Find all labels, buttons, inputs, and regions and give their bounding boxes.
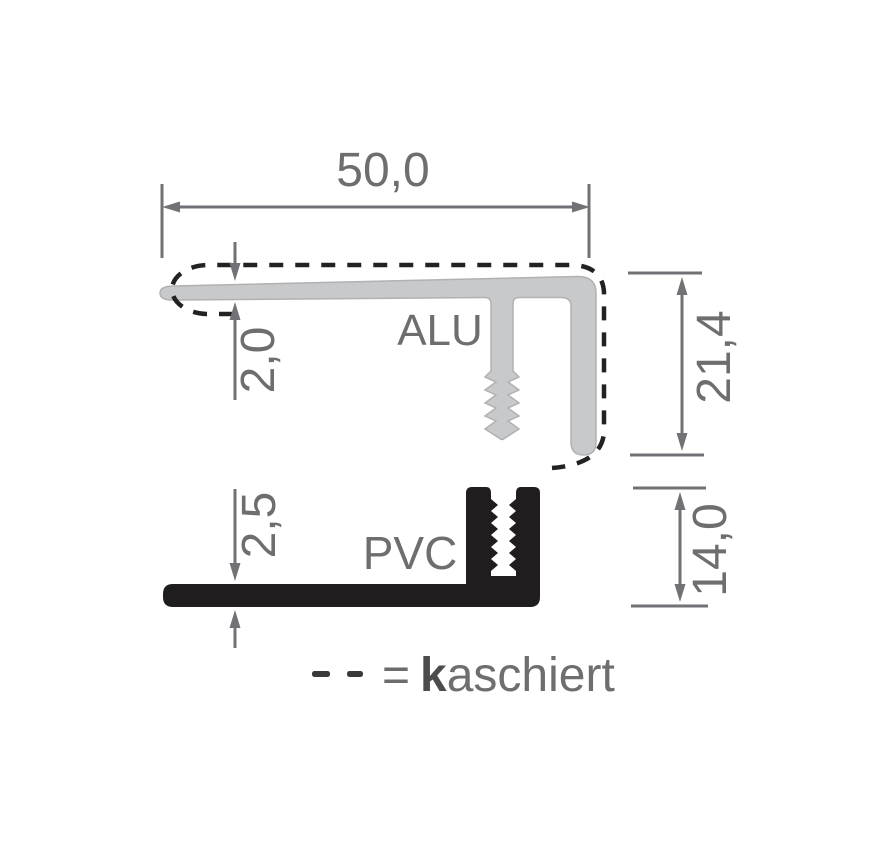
arrow-left-icon <box>162 202 180 213</box>
dim-total-width-label: 50,0 <box>336 147 429 195</box>
arrow-down-icon <box>230 563 241 581</box>
dim-pvc-height-label: 14,0 <box>687 503 735 596</box>
dim-alu-thickness-label: 2,0 <box>235 327 283 394</box>
alu-material-label: ALU <box>397 309 483 353</box>
arrow-down-icon <box>677 433 688 451</box>
arrow-up-icon <box>230 610 241 628</box>
dim-pvc-thickness-label: 2,5 <box>236 492 284 559</box>
legend-equals-sign: = <box>382 652 410 700</box>
pvc-material-label: PVC <box>363 530 458 576</box>
alu-profile-shape <box>160 277 596 456</box>
dashed-line-symbol-icon <box>347 671 363 677</box>
legend-term: kaschiert <box>420 652 615 700</box>
legend-term-rest: aschiert <box>447 649 615 702</box>
profile-diagram: 50,0 2,0 ALU 21,4 2,5 PVC 14,0 = kaschie… <box>0 0 882 843</box>
profile-drawing <box>0 0 882 843</box>
arrow-down-icon <box>230 263 241 281</box>
arrow-up-icon <box>230 302 241 320</box>
dashed-line-symbol-icon <box>312 671 330 677</box>
legend-term-initial: k <box>420 649 447 702</box>
arrow-up-icon <box>677 277 688 295</box>
dim-alu-height-label: 21,4 <box>691 310 739 403</box>
arrow-right-icon <box>572 202 590 213</box>
pvc-profile-shape <box>163 487 540 607</box>
